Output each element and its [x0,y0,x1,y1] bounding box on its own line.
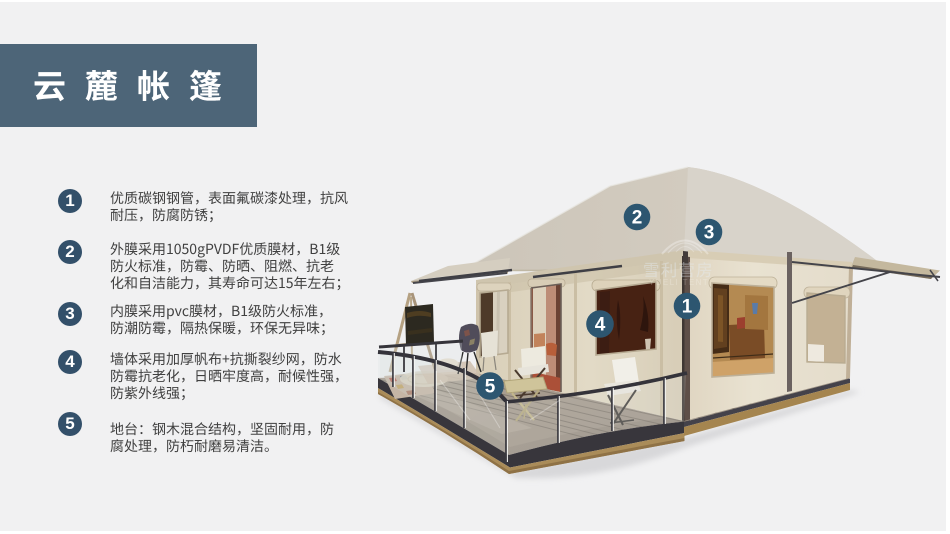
svg-text:5: 5 [485,377,496,398]
svg-text:YUELI TENT: YUELI TENT [649,278,709,287]
svg-text:1: 1 [682,297,693,318]
svg-text:3: 3 [704,223,715,244]
svg-text:2: 2 [632,208,643,229]
svg-text:4: 4 [595,315,606,336]
